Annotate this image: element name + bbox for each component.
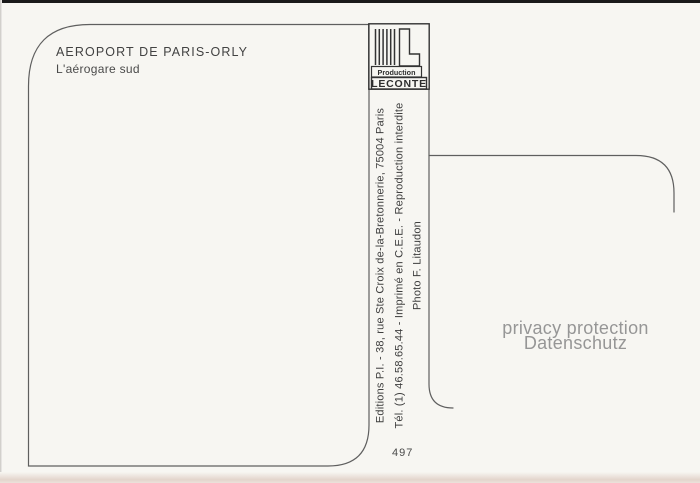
photo-credit-line: Photo F. Litaudon [409,96,428,436]
caption-block: AEROPORT DE PARIS-ORLY L'aérogare sud [56,45,248,76]
logo-vertical-bars [376,29,395,65]
publisher-address-line: Editions P.I. - 38, rue Ste Croix de-la-… [372,96,391,436]
divider-right-line [429,90,453,408]
logo-production-label: Production [378,68,416,77]
privacy-watermark: privacy protection Datenschutz [478,321,673,351]
publisher-credits: Editions P.I. - 38, rue Ste Croix de-la-… [372,96,429,436]
publisher-print-line: Tél. (1) 46.58.65.44 - Imprimé en C.E.E.… [390,96,409,436]
logo-letter-l-icon [400,29,420,66]
privacy-watermark-line2: Datenschutz [478,336,673,351]
postcard-title: AEROPORT DE PARIS-ORLY [56,45,248,59]
logo-leconte-label: LECONTE [371,78,427,90]
postcard-subtitle: L'aérogare sud [56,62,248,76]
message-panel-outline [29,25,370,467]
address-area-frame [429,156,674,213]
production-leconte-logo-icon: Production LECONTE [368,23,430,90]
card-number: 497 [392,447,413,459]
